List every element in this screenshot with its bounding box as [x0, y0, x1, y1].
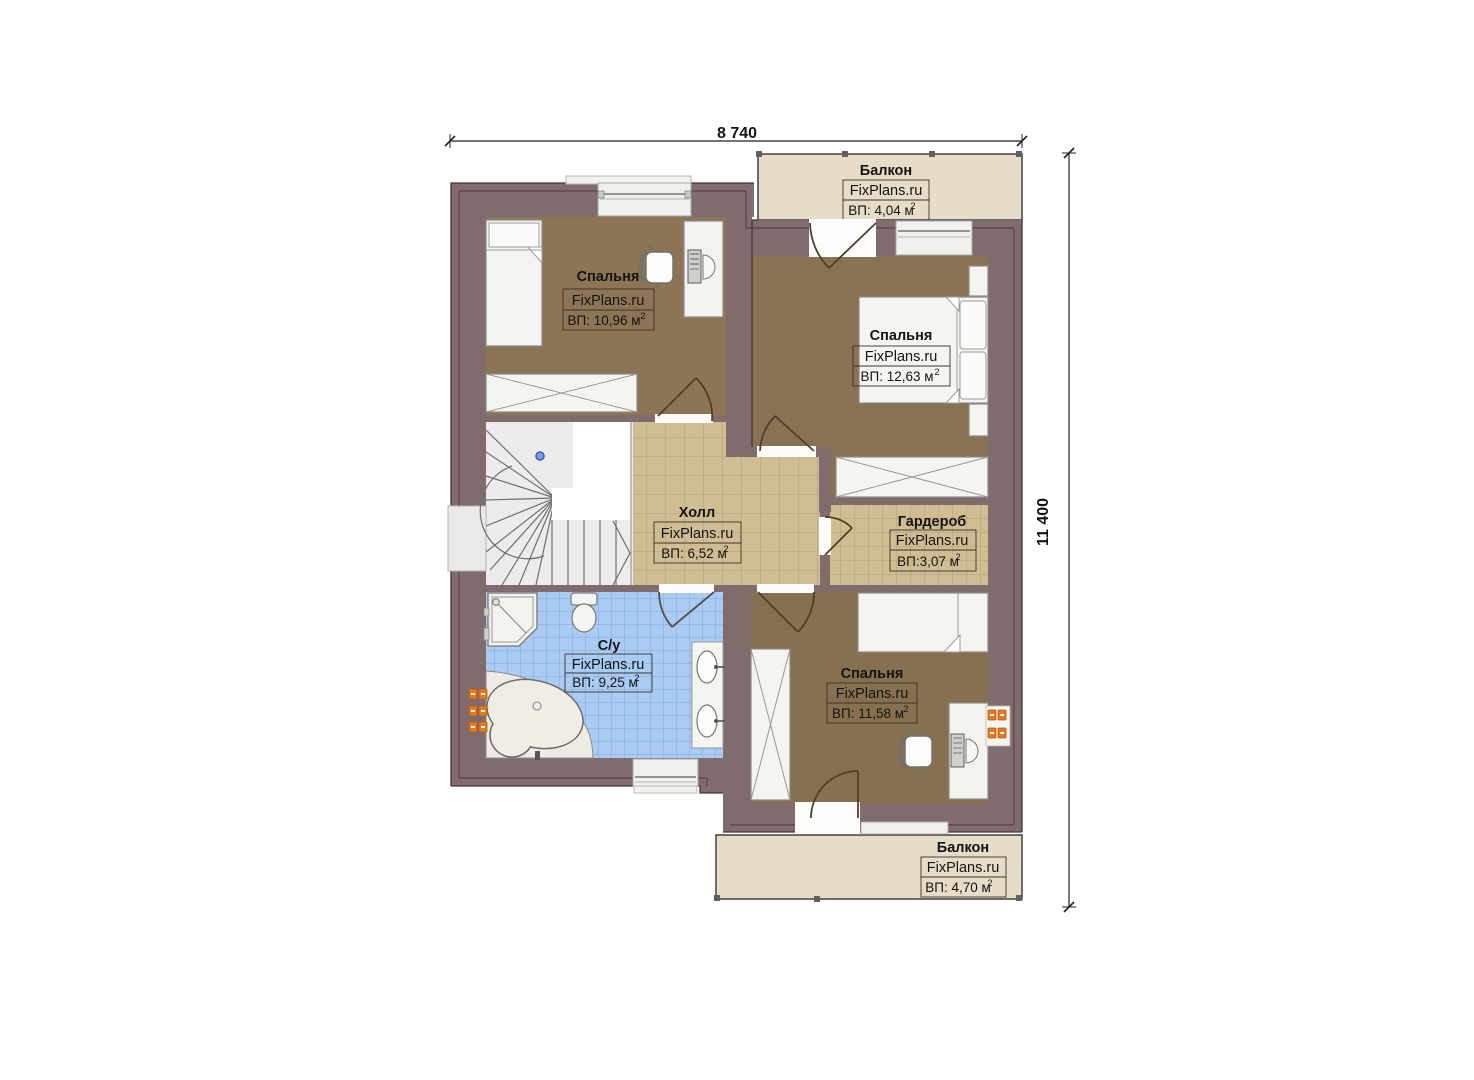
svg-text:FixPlans.ru: FixPlans.ru	[836, 686, 909, 702]
svg-text:8 740: 8 740	[717, 125, 757, 142]
svg-text:FixPlans.ru: FixPlans.ru	[572, 657, 645, 673]
svg-text:Гардероб: Гардероб	[898, 514, 967, 530]
svg-text:2: 2	[934, 367, 939, 377]
svg-text:FixPlans.ru: FixPlans.ru	[865, 349, 938, 365]
svg-text:ВП: 11,58 м: ВП: 11,58 м	[832, 706, 904, 721]
svg-text:ВП: 9,25 м: ВП: 9,25 м	[572, 675, 638, 690]
svg-text:2: 2	[634, 673, 639, 683]
svg-text:FixPlans.ru: FixPlans.ru	[927, 860, 1000, 876]
svg-text:FixPlans.ru: FixPlans.ru	[572, 293, 645, 309]
svg-text:2: 2	[640, 311, 645, 321]
svg-text:ВП: 6,52 м: ВП: 6,52 м	[661, 546, 727, 561]
svg-text:Балкон: Балкон	[860, 163, 912, 179]
svg-text:FixPlans.ru: FixPlans.ru	[896, 533, 969, 549]
svg-text:11 400: 11 400	[1035, 498, 1052, 546]
svg-text:FixPlans.ru: FixPlans.ru	[850, 183, 923, 199]
svg-text:2: 2	[903, 704, 908, 714]
svg-text:С/у: С/у	[598, 638, 621, 654]
svg-text:ВП: 10,96 м: ВП: 10,96 м	[567, 313, 640, 328]
svg-text:Холл: Холл	[679, 505, 715, 521]
svg-text:Спальня: Спальня	[577, 269, 640, 285]
svg-text:2: 2	[987, 878, 992, 888]
svg-text:Спальня: Спальня	[841, 666, 904, 682]
svg-text:Спальня: Спальня	[870, 328, 933, 344]
svg-text:2: 2	[955, 552, 960, 562]
svg-text:Балкон: Балкон	[937, 840, 989, 856]
svg-text:ВП:3,07 м: ВП:3,07 м	[897, 554, 959, 569]
svg-text:FixPlans.ru: FixPlans.ru	[661, 526, 734, 542]
svg-text:ВП: 12,63 м: ВП: 12,63 м	[860, 369, 933, 384]
svg-text:2: 2	[723, 544, 728, 554]
svg-text:ВП: 4,70 м: ВП: 4,70 м	[925, 880, 991, 895]
svg-text:2: 2	[910, 201, 915, 211]
svg-text:ВП: 4,04 м: ВП: 4,04 м	[848, 203, 914, 218]
